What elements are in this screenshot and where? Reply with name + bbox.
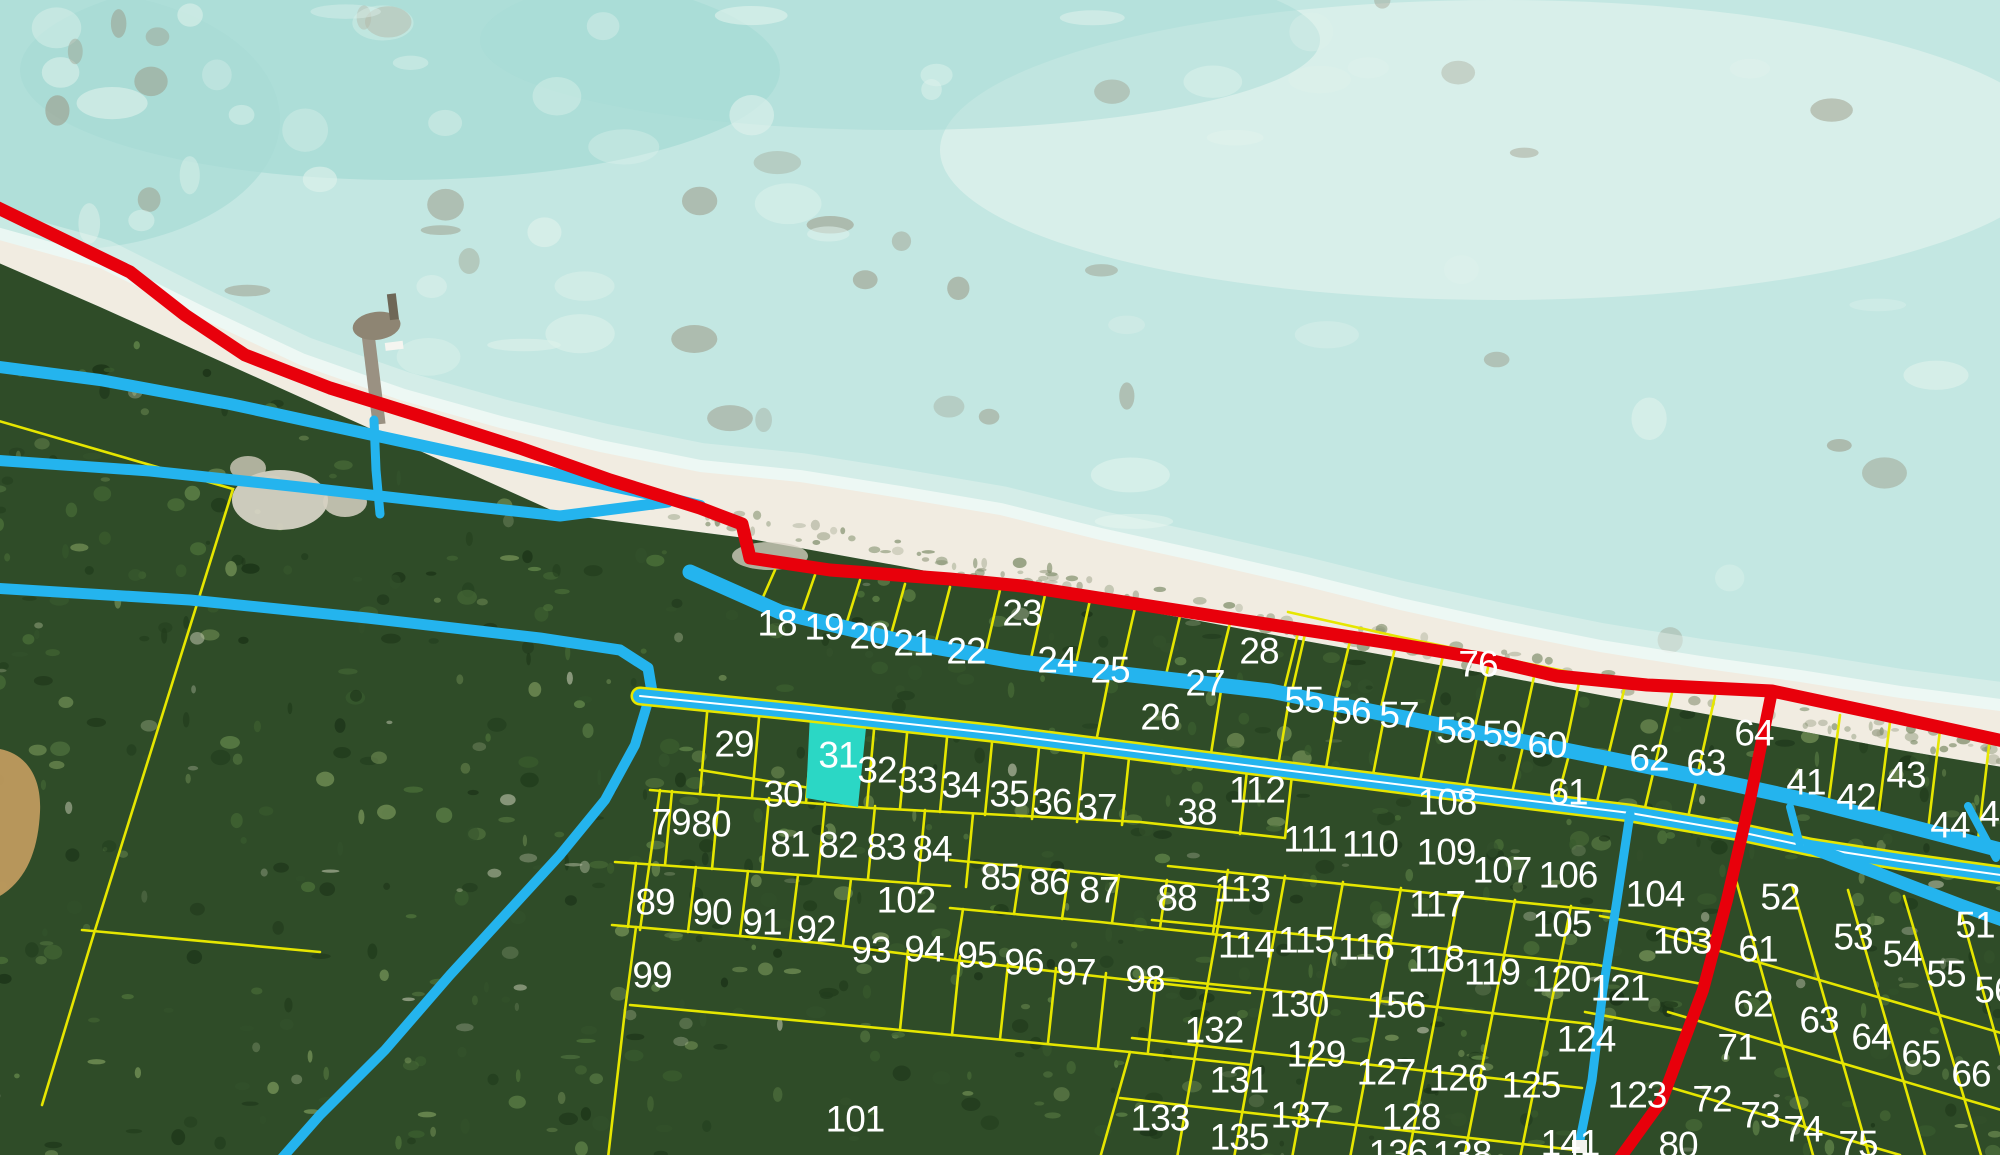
reef-patch [1510,148,1539,158]
vegetation-speckle [1015,1052,1025,1057]
vegetation-speckle [405,1057,412,1063]
sand-shallow-patch [428,110,462,136]
vegetation-speckle [776,684,794,692]
vegetation-speckle [2,477,13,485]
parcel-label-91: 91 [742,901,781,942]
parcel-label-119: 119 [1464,951,1520,992]
vegetation-speckle [460,1118,469,1134]
vegetation-speckle [625,1010,637,1020]
parcel-label-25: 25 [1090,649,1130,690]
vegetation-speckle [436,807,452,822]
vegetation-speckle [22,634,34,644]
vegetation-speckle [101,477,110,482]
sand-shallow-patch [1207,130,1264,146]
vegetation-speckle [456,888,462,892]
parcel-label-117: 117 [1409,883,1465,924]
vegetation-speckle [528,567,541,571]
scrub-speckle [795,538,801,542]
parcel-label-110: 110 [1342,823,1398,864]
parcel-label-107: 107 [1473,849,1532,890]
vegetation-speckle [839,980,848,991]
vegetation-speckle [191,685,196,693]
reef-patch [1827,439,1852,452]
vegetation-speckle [1451,1112,1467,1126]
vegetation-speckle [358,810,364,825]
parcel-label-45: 45 [1979,793,2000,834]
vegetation-speckle [225,561,237,576]
sand-shallow-patch [545,314,614,353]
parcel-label-124: 124 [1557,1018,1616,1059]
vegetation-speckle [1889,891,1901,903]
sand-shallow-patch [1091,457,1170,492]
parcel-label-51: 51 [1955,904,1994,945]
vegetation-speckle [238,637,248,644]
vegetation-speckle [500,555,519,561]
reef-patch [707,405,753,431]
vegetation-speckle [171,1129,185,1145]
vegetation-speckle [554,832,564,838]
vegetation-speckle [34,622,43,628]
reef-patch [979,409,1000,425]
vegetation-speckle [674,632,683,642]
vegetation-speckle [418,1112,436,1118]
reef-patch [934,396,965,418]
vegetation-speckle [522,550,532,563]
reef-patch [45,95,69,125]
parcel-label-120: 120 [1532,958,1591,999]
reef-patch [671,325,717,353]
vegetation-speckle [1165,992,1178,999]
vegetation-speckle [1883,833,1893,844]
vegetation-speckle [334,460,353,469]
vegetation-speckle [1248,1008,1259,1018]
vegetation-speckle [367,944,377,960]
scrub-speckle [1509,652,1522,657]
parcel-label-63: 63 [1799,999,1838,1040]
scrub-speckle [917,552,922,556]
vegetation-speckle [1888,988,1899,995]
vegetation-speckle [383,883,390,890]
vegetation-speckle [523,835,527,847]
vegetation-speckle [42,928,48,936]
parcel-label-72: 72 [1692,1078,1731,1119]
scrub-speckle [869,546,881,553]
reef-patch [754,151,801,174]
vegetation-speckle [561,1055,581,1059]
scrub-speckle [1844,726,1851,732]
vegetation-speckle [1899,983,1919,989]
vegetation-speckle [656,1125,673,1132]
vegetation-speckle [139,636,149,642]
parcel-label-79: 79 [651,801,690,842]
vegetation-speckle [412,992,425,997]
scrub-speckle [922,557,929,562]
vegetation-speckle [34,676,53,685]
vegetation-speckle [472,995,478,1005]
vegetation-speckle [88,1018,100,1023]
vegetation-speckle [528,682,541,697]
parcel-label-18: 18 [757,602,796,643]
vegetation-speckle [1648,998,1660,1012]
parcel-label-37: 37 [1077,786,1116,827]
sand-shallow-patch [1903,361,1968,390]
sand-shallow-patch [807,226,850,241]
vegetation-speckle [606,679,611,684]
vegetation-speckle [520,773,539,788]
parcel-label-83: 83 [866,826,905,867]
parcel-label-85: 85 [980,856,1020,897]
sand-shallow-patch [555,271,615,301]
vegetation-speckle [231,813,243,828]
vegetation-speckle [104,368,115,373]
vegetation-speckle [455,890,469,906]
vegetation-speckle [519,854,537,863]
parcel-label-33: 33 [897,759,936,800]
vegetation-speckle [589,1073,603,1084]
vegetation-speckle [1370,901,1382,914]
scrub-speckle [753,511,761,520]
parcel-label-138: 138 [1433,1133,1492,1155]
parcel-label-76: 76 [1458,643,1497,684]
vegetation-speckle [1082,723,1099,728]
vegetation-speckle [319,882,335,896]
parcel-label-129: 129 [1287,1033,1346,1074]
vegetation-speckle [713,1044,727,1050]
vegetation-speckle [1266,825,1282,832]
vegetation-speckle [784,968,801,974]
parcel-label-102: 102 [877,879,936,920]
vegetation-speckle [1098,636,1108,648]
vegetation-speckle [190,903,205,916]
reef-patch [1441,61,1475,85]
reef-patch [138,187,161,212]
vegetation-speckle [1166,795,1171,807]
reef-patch [1810,98,1853,121]
parcel-label-43: 43 [1886,754,1925,795]
vegetation-speckle [456,674,463,684]
scrub-speckle [981,558,987,568]
vegetation-speckle [1660,1001,1678,1008]
reef-patch [134,67,167,97]
sand-shallow-patch [416,275,447,298]
parcel-label-28: 28 [1239,630,1278,671]
vegetation-speckle [719,675,727,681]
scrub-speckle [1017,571,1023,575]
parcel-label-90: 90 [692,891,732,932]
sand-shallow-patch [128,210,154,231]
reef-patch [682,187,717,216]
scrub-speckle [1869,721,1873,731]
scrub-speckle [973,558,977,568]
sand-shallow-patch [527,217,561,247]
vegetation-speckle [1458,1050,1464,1057]
scrub-speckle [892,547,904,556]
scrub-speckle [935,560,948,565]
vegetation-speckle [871,662,888,674]
sand-shallow-patch [1715,565,1744,592]
vegetation-speckle [870,1051,880,1062]
vegetation-speckle [1531,1110,1538,1118]
vegetation-speckle [50,741,70,756]
parcel-label-64: 64 [1734,712,1774,753]
vegetation-speckle [259,1116,266,1125]
vegetation-speckle [584,565,603,576]
vegetation-speckle [466,532,473,546]
vegetation-speckle [1640,719,1658,733]
parcel-label-60: 60 [1527,724,1567,765]
vegetation-speckle [501,996,510,1002]
parcel-label-20: 20 [849,615,889,656]
vegetation-speckle [329,474,337,479]
vegetation-speckle [581,1026,597,1035]
sand-shallow-patch [77,87,148,119]
vegetation-speckle [773,1087,783,1102]
parcel-label-23: 23 [1002,592,1041,633]
scrub-speckle [1532,653,1543,663]
vegetation-speckle [167,498,184,511]
parcel-label-34: 34 [941,764,981,805]
parcel-label-97: 97 [1056,951,1095,992]
vegetation-speckle [1160,643,1179,653]
vegetation-speckle [206,541,211,545]
scrub-speckle [952,563,956,570]
parcel-label-132: 132 [1185,1009,1244,1050]
parcel-label-137: 137 [1271,1094,1330,1135]
sand-shallow-patch [1060,10,1125,25]
parcel-label-105: 105 [1533,903,1592,944]
scrub-speckle [1891,728,1899,732]
scrub-speckle [1968,744,1974,747]
parcel-label-111: 111 [1283,818,1336,859]
vegetation-speckle [40,941,54,945]
vegetation-speckle [552,564,560,577]
vegetation-speckle [826,648,833,657]
vegetation-speckle [94,486,112,501]
parcel-label-30: 30 [763,773,803,814]
vegetation-speckle [863,985,871,999]
vegetation-speckle [974,748,985,764]
sand-shallow-patch [229,105,255,125]
parcel-label-135: 135 [1210,1116,1269,1155]
vegetation-speckle [1417,1027,1429,1034]
reef-patch [427,189,464,221]
parcel-label-116: 116 [1338,926,1394,967]
vegetation-speckle [488,1074,499,1085]
scrub-speckle [1545,657,1553,665]
vegetation-speckle [487,869,501,878]
parcel-label-44: 44 [1930,804,1970,845]
vegetation-speckle [652,861,661,877]
scrub-speckle [812,540,820,545]
vegetation-speckle [447,556,458,561]
vegetation-speckle [777,1019,783,1031]
vegetation-speckle [49,761,64,769]
vegetation-speckle [254,721,261,732]
sand-shallow-patch [1348,57,1389,78]
vegetation-speckle [1578,697,1589,708]
parcel-label-19: 19 [804,606,843,647]
parcel-label-118: 118 [1408,938,1464,979]
vegetation-speckle [702,1120,711,1132]
vegetation-speckle [25,942,39,957]
vegetation-speckle [1923,843,1930,853]
vegetation-speckle [184,1117,197,1128]
scrub-speckle [1940,746,1949,753]
reef-patch [68,39,83,65]
vegetation-speckle [903,589,916,602]
parcel-label-62: 62 [1629,737,1668,778]
vegetation-speckle [897,691,915,700]
scrub-speckle [1905,732,1919,741]
vegetation-speckle [626,1034,644,1041]
vegetation-speckle [66,503,77,518]
scrub-speckle [1235,604,1243,612]
vegetation-speckle [301,882,315,892]
reef-patch [459,248,480,274]
vegetation-speckle [214,1137,225,1150]
vegetation-speckle [1366,685,1373,689]
sand-shallow-patch [729,95,774,135]
vegetation-speckle [380,969,389,981]
vegetation-speckle [126,1129,142,1133]
vegetation-speckle [1945,1103,1956,1116]
parcel-map-canvas[interactable]: 1819202122232425262728765556575859606162… [0,0,2000,1155]
vegetation-speckle [1134,918,1147,932]
vegetation-speckle [135,1067,141,1078]
parcel-label-115: 115 [1278,919,1334,960]
map-viewport[interactable]: 1819202122232425262728765556575859606162… [0,0,2000,1155]
vegetation-speckle [589,861,608,869]
parcel-label-99: 99 [632,954,671,995]
vegetation-speckle [337,842,343,856]
parcel-label-89: 89 [635,881,674,922]
vegetation-speckle [187,950,202,964]
vegetation-speckle [429,638,439,644]
vegetation-speckle [1267,817,1285,827]
scrub-speckle [1876,729,1888,739]
vegetation-speckle [261,869,268,877]
vegetation-speckle [183,616,189,629]
vegetation-speckle [461,763,471,774]
reef-patch [146,27,170,46]
vegetation-speckle [1942,769,1946,777]
vegetation-speckle [758,962,773,975]
vegetation-speckle [502,947,519,959]
parcel-label-101: 101 [826,1098,885,1139]
reef-patch [892,231,911,251]
vegetation-speckle [702,852,709,865]
vegetation-speckle [299,436,309,441]
parcel-label-36: 36 [1032,781,1071,822]
vegetation-speckle [338,668,357,674]
reef-patch [1862,457,1907,488]
vegetation-speckle [500,794,516,805]
vegetation-speckle [1352,1037,1370,1042]
vegetation-speckle [592,1116,609,1131]
reef-patch [1484,352,1510,368]
vegetation-speckle [963,834,968,840]
vegetation-speckle [1323,652,1340,663]
vegetation-speckle [526,653,531,665]
vegetation-speckle [350,690,362,702]
scrub-speckle [880,550,891,553]
sand-shallow-patch [715,6,788,25]
vegetation-speckle [185,486,200,501]
scrub-speckle [766,521,771,527]
vegetation-speckle [408,1130,425,1138]
vegetation-speckle [1114,1061,1125,1065]
vegetation-speckle [397,470,401,485]
vegetation-speckle [259,806,273,815]
scrub-speckle [1193,597,1207,605]
vegetation-speckle [41,780,46,790]
vegetation-speckle [981,1116,999,1130]
vegetation-speckle [932,1071,950,1084]
vegetation-speckle [58,697,73,708]
vegetation-speckle [284,998,292,1013]
vegetation-speckle [85,566,94,575]
vegetation-speckle [646,555,664,567]
vegetation-speckle [597,770,601,786]
vegetation-speckle [87,718,106,727]
sand-shallow-patch [177,3,203,26]
scrub-speckle [840,527,845,534]
vegetation-speckle [559,1113,578,1125]
vegetation-speckle [1304,745,1311,756]
parcel-label-96: 96 [1004,941,1043,982]
scrub-speckle [817,532,830,540]
vegetation-speckle [426,572,437,576]
parcel-label-56: 56 [1974,969,2000,1010]
vegetation-speckle [389,575,400,589]
vegetation-speckle [404,786,423,792]
sand-shallow-patch [1631,398,1666,440]
vegetation-speckle [296,876,306,882]
vegetation-speckle [957,674,974,685]
vegetation-speckle [203,369,212,377]
vegetation-speckle [1155,854,1170,864]
scrub-speckle [922,550,935,554]
parcel-label-123: 123 [1608,1074,1667,1115]
parcel-label-27: 27 [1185,662,1224,703]
vegetation-speckle [857,591,865,598]
vegetation-speckle [1796,979,1805,988]
vegetation-speckle [554,589,569,594]
vegetation-speckle [610,987,627,1001]
vegetation-speckle [773,949,782,958]
vegetation-speckle [753,808,762,822]
parcel-label-136: 136 [1369,1132,1428,1155]
vegetation-speckle [251,987,262,994]
scrub-speckle [668,514,680,520]
scrub-speckle [1800,707,1810,711]
vegetation-speckle [565,855,569,871]
parcel-label-71: 71 [1717,1026,1756,1067]
vegetation-speckle [1044,1112,1060,1118]
vegetation-speckle [333,747,351,758]
vegetation-speckle [252,1042,260,1052]
vegetation-speckle [498,817,515,823]
vegetation-speckle [1043,1071,1053,1077]
vegetation-speckle [1182,1081,1202,1093]
parcel-label-54: 54 [1882,933,1922,974]
vegetation-speckle [1696,837,1700,847]
parcel-label-41: 41 [1786,761,1825,802]
scrub-speckle [1223,602,1235,609]
vegetation-speckle [679,999,685,1007]
parcel-label-109: 109 [1417,831,1476,872]
sand-shallow-patch [920,64,952,87]
